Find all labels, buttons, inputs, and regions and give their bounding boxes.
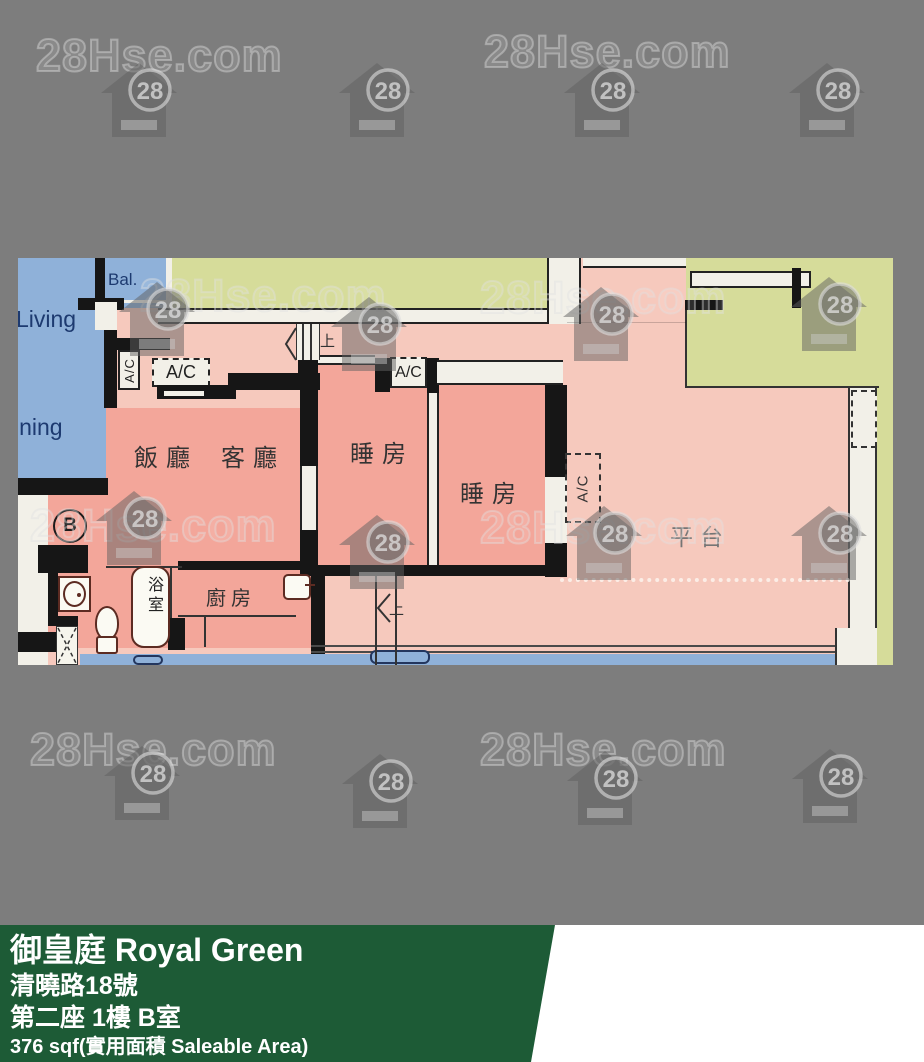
window-slot [164, 391, 204, 396]
room-bedroom-2 [437, 378, 547, 568]
watermark-house-icon: 28 [791, 748, 869, 824]
watermark-text: 28Hse.com [36, 30, 283, 82]
wall-segment [168, 618, 185, 650]
neighbor-flat-left [18, 258, 106, 478]
ac-label: A/C [395, 364, 422, 382]
outdoor-green-rightstrip [877, 388, 893, 665]
property-title: 御皇庭 Royal Green [10, 930, 560, 970]
svg-text:28: 28 [140, 761, 167, 788]
kitchen-counter-line [204, 617, 206, 647]
watermark-text: 28Hse.com [480, 724, 727, 776]
wall-segment [300, 530, 318, 570]
kitchen-counter-line [178, 615, 296, 617]
svg-text:28: 28 [600, 78, 627, 105]
wall-bed1-bed2 [427, 393, 439, 568]
svg-text:28: 28 [828, 764, 855, 791]
kitchen-faucet [305, 584, 315, 586]
wall-segment [18, 632, 56, 652]
lightwell-x-icon [57, 627, 77, 664]
watermark-house-icon: 28 [563, 62, 641, 138]
neighbor-dining-label: ining [18, 414, 63, 441]
wall-segment [48, 616, 78, 626]
balcony-end [166, 258, 172, 308]
wall-segment [311, 565, 325, 657]
svg-text:28: 28 [378, 769, 405, 796]
watermark-house-icon: 28 [341, 753, 419, 829]
terrace-dotted-line [560, 578, 850, 582]
wall-gap [545, 477, 567, 543]
window-band-bedroom2 [437, 360, 563, 385]
wall-segment [545, 385, 567, 477]
dining-room-label: 飯廳 [134, 438, 198, 473]
right-notch [835, 628, 877, 665]
ac-platform-right [851, 390, 877, 448]
svg-text:28: 28 [375, 78, 402, 105]
wall-segment [298, 358, 318, 390]
neighbor-balcony-label: Bal. [108, 270, 137, 290]
watermark-house-icon: 28 [566, 750, 644, 826]
flat-marker-label: B [63, 515, 77, 537]
watermark-text: 28Hse.com [484, 26, 731, 78]
wall-segment [38, 545, 88, 573]
neighbor-living-label: Living [18, 306, 76, 333]
watermark-text: 28Hse.com [30, 724, 277, 776]
ac-label: A/C [122, 358, 137, 383]
floor-plan: A/C A/C A/C A/C [18, 258, 893, 665]
gate-post [792, 268, 801, 308]
basin-drain [77, 593, 81, 597]
stairs-up-label: 上 [389, 598, 404, 619]
boundary-wall-jog [547, 258, 581, 324]
wall-segment [300, 565, 567, 576]
svg-text:28: 28 [603, 766, 630, 793]
stairs-step-line [395, 576, 397, 665]
wall-segment [300, 388, 318, 466]
wall-segment [178, 561, 302, 570]
bathtub-fixture: 浴室 [131, 566, 170, 648]
svg-text:28: 28 [137, 78, 164, 105]
boundary-wall-band [158, 308, 580, 324]
lightwell [56, 626, 78, 665]
ac-box-dashed: A/C [152, 358, 210, 387]
wall-thin-line [170, 568, 172, 620]
boundary-wall-topband [583, 258, 686, 268]
screenshot-root: A/C A/C A/C A/C [0, 0, 924, 1062]
living-room-label: 客廳 [221, 438, 285, 473]
flat-marker: B [53, 509, 87, 543]
wall-segment [108, 338, 170, 350]
ac-platform-dashed: A/C [565, 453, 601, 523]
gate-segment [685, 300, 723, 310]
corridor-line [311, 645, 856, 647]
wall-segment [95, 258, 105, 302]
kitchen-sink-fixture [283, 574, 311, 600]
watermark-house-icon: 28 [103, 745, 181, 821]
svg-text:28: 28 [825, 78, 852, 105]
toilet-base [96, 636, 118, 654]
watermark-house-icon: 28 [788, 62, 866, 138]
ac-niche-left: A/C [118, 350, 140, 390]
ac-label: A/C [166, 362, 196, 383]
property-area: 376 sqf(實用面積 Saleable Area) [10, 1034, 560, 1061]
wall-door-gap [300, 466, 318, 530]
neighbor-fixture [133, 655, 163, 665]
watermark-house-icon: 28 [100, 62, 178, 138]
stairs-up-label: 上 [320, 330, 335, 351]
wall-segment [18, 478, 108, 495]
terrace-faint-line [567, 322, 686, 323]
terrace-label: 平台 [670, 518, 730, 552]
stairs-arrow-icon [284, 326, 298, 362]
toilet-fixture [94, 606, 122, 656]
wall-white-corner [95, 302, 117, 330]
neighbor-fixture [370, 650, 430, 664]
ac-label: A/C [574, 474, 591, 502]
room-living-dining [106, 408, 300, 568]
bedroom2-label: 睡房 [460, 474, 524, 509]
property-unit: 第二座 1樓 B室 [10, 1003, 560, 1034]
stairs-step-line [302, 324, 304, 360]
property-info-banner: 御皇庭 Royal Green 清曉路18號 第二座 1樓 B室 376 sqf… [0, 925, 560, 1062]
wall-segment [48, 560, 58, 620]
wall-segment [375, 358, 390, 392]
watermark-house-icon: 28 [338, 62, 416, 138]
ac-box-bedroom1: A/C [390, 357, 427, 388]
stairs-top [296, 324, 320, 360]
bedroom1-label: 睡房 [350, 434, 414, 469]
basin-fixture [58, 576, 91, 612]
basin-bowl [63, 581, 86, 607]
toilet-bowl [95, 606, 119, 640]
bathroom-label: 浴室 [141, 576, 165, 616]
property-address: 清曉路18號 [10, 970, 560, 1003]
outdoor-green-top [172, 258, 563, 308]
stairs-step-line [310, 324, 312, 360]
kitchen-label: 廚房 [206, 582, 256, 611]
neighbor-strip-bottom [80, 654, 835, 665]
window-strip [318, 355, 375, 365]
